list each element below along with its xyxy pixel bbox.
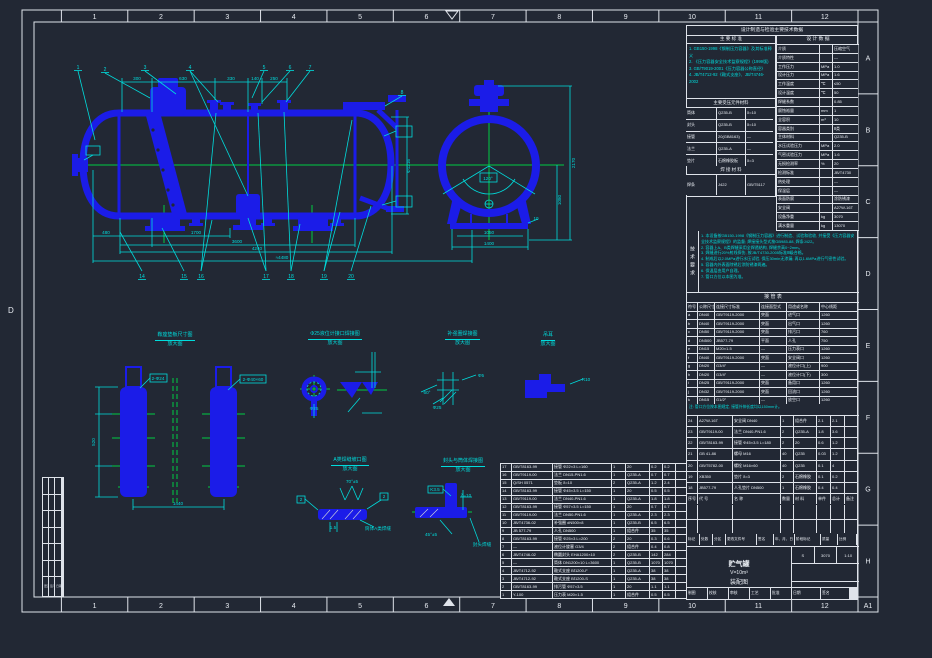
tech-req-item: 7. 管口方位以本图为准。 (701, 274, 857, 280)
table-cell: 1.8 (663, 496, 675, 503)
table-cell: DN25 (698, 380, 714, 388)
table-cell: 0.5 (650, 488, 662, 495)
dimension-label: ≈4480 (276, 255, 289, 260)
table-cell: 1 (612, 512, 625, 519)
table-cell: 设计压力 (777, 72, 819, 80)
table-cell: 签名 (757, 534, 773, 545)
table-cell: 接管 Φ45×3.5 L=150 (553, 488, 611, 495)
table-cell: 2 (781, 472, 793, 482)
table-cell: 15 (501, 480, 511, 487)
table-cell: GB/T9119-00 (512, 472, 552, 479)
dimension-label: 封头焊缝 (473, 541, 492, 548)
table-cell (49, 495, 54, 511)
table-cell: — (746, 143, 773, 154)
table-cell (831, 505, 844, 519)
grid-col-label: 10 (688, 603, 696, 610)
table-cell: 1.2 (831, 449, 844, 459)
table-cell: 1260 (820, 397, 857, 405)
table-cell: 0.5 (650, 591, 662, 598)
table-cell (781, 520, 793, 534)
table-cell: 900 (820, 363, 857, 371)
table-cell: f (687, 354, 697, 362)
table-cell (49, 478, 54, 494)
table-cell (845, 416, 857, 426)
table-cell: JB/T4746-02 (512, 551, 552, 558)
grid-col-label: 1 (93, 603, 97, 610)
table-cell: 气密试验压力 (777, 151, 819, 159)
table-cell: 设备净重 (777, 213, 819, 221)
table-cell: 鞍式支座 BⅠ1200-S (553, 575, 611, 582)
table-cell: 水压试验压力 (777, 142, 819, 150)
table-cell: 1260 (820, 380, 857, 388)
table-cell (845, 483, 857, 493)
detail-title-head-weld: 封头与筒体焊接图放大图 (418, 458, 508, 474)
table-cell: b (687, 320, 697, 328)
dimension-label: 2170 (571, 157, 576, 168)
table-cell: 20 (626, 488, 649, 495)
table-cell: kg (820, 213, 832, 221)
table-cell (781, 505, 793, 519)
weld-title: 焊 接 材 料 (687, 166, 775, 175)
table-cell: 38 (650, 567, 662, 574)
table-cell: GB/T8163-99 (512, 535, 552, 542)
table-cell: 6 (501, 551, 511, 558)
grid-col-label: 5 (358, 603, 362, 610)
table-cell: 760 (820, 329, 857, 337)
table-cell (845, 427, 857, 437)
table-cell (698, 505, 732, 519)
table-cell (687, 520, 697, 534)
grid-col-label: 11 (755, 603, 762, 610)
table-cell (820, 187, 832, 195)
grid-col-label: 4 (292, 14, 296, 21)
table-cell: DN20 (698, 363, 714, 371)
table-cell: 螺栓 M16×60 (733, 461, 780, 471)
dimension-label: 520 (91, 438, 96, 446)
table-cell (820, 54, 832, 62)
dimension-label: 1400 (484, 241, 495, 246)
table-cell: GB/T9119-00 (698, 427, 732, 437)
table-cell: Q235-B (717, 120, 745, 131)
grid-col-label: 1 (93, 14, 97, 21)
table-cell: — (746, 132, 773, 143)
table-cell: 1.8 (817, 427, 830, 437)
table-cell: 工作压力 (777, 63, 819, 71)
table-cell: 40 (781, 449, 793, 459)
table-cell: 0.2 (650, 464, 662, 471)
table-cell: 满水重量 (777, 222, 819, 230)
table-cell: — (833, 54, 858, 62)
table-cell (820, 45, 832, 53)
table-cell: Q235-A (717, 143, 745, 154)
dimension-label: δ=10 (461, 493, 472, 498)
table-cell (831, 520, 844, 534)
table-cell: DN40 (698, 354, 714, 362)
table-cell: 备用口 (787, 380, 819, 388)
grid-col-label: 3 (225, 603, 229, 610)
table-cell: 批准 (771, 588, 791, 599)
table-cell: 1070 (650, 559, 662, 566)
table-cell (733, 505, 780, 519)
table-cell: 介质特性 (777, 54, 819, 62)
table-cell (817, 505, 830, 519)
table-cell: 40 (781, 461, 793, 471)
table-cell: 2 (781, 427, 793, 437)
table-cell: 容器类别 (777, 125, 819, 133)
table-cell (820, 134, 832, 142)
table-cell: 表面防腐 (777, 196, 819, 204)
table-cell: 17 (501, 464, 511, 471)
table-cell: m³ (820, 116, 832, 124)
table-cell: 法兰 (686, 143, 716, 154)
table-cell: 突面 (760, 320, 786, 328)
table-cell: 接管 (686, 132, 716, 143)
table-cell (820, 98, 832, 106)
table-cell: 突面 (760, 354, 786, 362)
table-cell: 1 (612, 528, 625, 535)
table-cell: 1.2 (650, 480, 662, 487)
dimension-label: R10 (582, 377, 591, 382)
dimension-label: 1440 (173, 501, 184, 506)
table-cell (55, 544, 61, 560)
table-cell: GB/T8163-99 (512, 583, 552, 590)
drawing-type: 装配图 (730, 577, 748, 586)
dimension-label: 1050 (484, 230, 495, 235)
table-cell: 突面 (760, 312, 786, 320)
table-cell: A27W-16T (833, 204, 858, 212)
table-cell: DN50 (698, 329, 714, 337)
dimension-label: 120° (483, 176, 493, 181)
table-cell: 6.5 (650, 520, 662, 527)
table-cell: 排污口 (787, 329, 819, 337)
standards-item: 4. JB/T4712-92《鞍式支座》、JB/T4746-2002 (689, 72, 773, 85)
dimension-label: 140 (251, 76, 259, 81)
table-cell: DN500 (698, 337, 714, 345)
table-cell (845, 520, 857, 534)
table-cell: 35 (663, 528, 675, 535)
product-spec: V=10m³ (730, 570, 748, 576)
table-cell: 20 (626, 464, 649, 471)
grid-row-label: D (865, 271, 870, 278)
table-cell: Q235-B (626, 559, 649, 566)
saddle-plan-detail (120, 367, 237, 497)
grid-col-label: 3 (225, 14, 229, 21)
center-mark-bottom (443, 598, 455, 606)
saddle-right (298, 214, 328, 227)
table-cell: 0.2 (831, 472, 844, 482)
table-cell (55, 561, 61, 577)
table-cell: 补强圈 dN500×8 (553, 520, 611, 527)
table-cell: 材 料 (794, 494, 816, 504)
table-cell (820, 196, 832, 204)
table-cell (687, 505, 697, 519)
table-cell: 安全阀 DN40 (733, 416, 780, 426)
grid-col-label: 7 (491, 603, 495, 610)
table-cell: 1 (612, 591, 625, 598)
table-cell: 垫板 δ=10 (553, 480, 611, 487)
table-cell: — (833, 187, 858, 195)
table-cell: 0.5 (663, 591, 675, 598)
table-cell: 21 (687, 449, 697, 459)
table-cell: GB/T8163-99 (512, 464, 552, 471)
table-cell: 石棉橡胶 (794, 472, 816, 482)
table-cell: 1 (612, 464, 625, 471)
table-cell: 0.1 (817, 461, 830, 471)
table-cell: 筒体 (686, 108, 716, 119)
detail-title-saddle: 鞍座垫板尺寸图放大图 (135, 332, 215, 348)
grid-row-label: H (865, 559, 870, 566)
grid-row-label: E (866, 343, 871, 350)
table-cell: GB/T8163-99 (512, 488, 552, 495)
detail-title-reinforcement: 补强圈焊接图放大图 (425, 331, 500, 347)
table-cell: 全容积 (777, 116, 819, 124)
table-cell: 符号 (687, 303, 697, 311)
table-cell: 38 (650, 575, 662, 582)
left-nozzle (72, 154, 78, 176)
table-cell: M20×1.5 (715, 346, 759, 354)
standards-item: 1. GB150-1998《钢制压力容器》及其标准释义 (689, 46, 773, 59)
table-cell: 1070 (663, 559, 675, 566)
table-cell: 处数 (700, 534, 712, 545)
table-cell: δ=3 (746, 155, 773, 166)
table-cell: JB 577-79 (512, 528, 552, 535)
table-cell: 阶段标记 (795, 534, 820, 545)
grid-col-label: 5 (358, 14, 362, 21)
table-cell: 设计温度 (777, 89, 819, 97)
design-data-table: 介质压缩空气介质特性—工作压力MPa1.0设计压力MPa1.6工作温度℃≤50设… (777, 45, 858, 230)
table-cell: 0.8 (663, 543, 675, 550)
table-cell: 1 (833, 107, 858, 115)
table-cell: 0.7 (663, 472, 675, 479)
table-cell: GB/T9119-2000 (715, 388, 759, 396)
table-cell: Q235-B (626, 520, 649, 527)
table-cell: 1 (501, 591, 511, 598)
table-cell: 0.7 (650, 472, 662, 479)
table-cell: Q235-B (717, 108, 745, 119)
detail-title-lug: 吊耳放大图 (518, 332, 578, 348)
table-cell: Q235 (794, 461, 816, 471)
grid-row-label: B (866, 127, 871, 134)
sheet-format-label: A1 (864, 603, 873, 610)
bom-table-main: 17GB/T8163-99接管 Φ22×3 L=1601200.20.216GB… (500, 463, 691, 599)
table-cell: 1260 (820, 388, 857, 396)
table-cell: GB/T5117 (746, 175, 773, 195)
table-cell: 1260 (820, 354, 857, 362)
table-cell (794, 520, 816, 534)
table-cell: 12 (501, 504, 511, 511)
table-cell (820, 169, 832, 177)
design-data-title: 设 计 数 据 (777, 35, 859, 45)
table-cell: 分区 (713, 534, 725, 545)
table-cell: 热处理 (777, 178, 819, 186)
table-cell: Q235-B (626, 551, 649, 558)
table-cell: ≤50 (833, 80, 858, 88)
table-cell: — (833, 178, 858, 186)
table-cell: JB577-79 (698, 483, 732, 493)
grid-col-label: 6 (425, 14, 429, 21)
table-cell: 0.5 (663, 488, 675, 495)
table-cell: 序号 (687, 494, 697, 504)
table-cell: 平面 (760, 337, 786, 345)
table-cell: 1260 (820, 320, 857, 328)
dimension-label: 3600 (232, 239, 243, 244)
table-cell: GB/T9119-00 (512, 512, 552, 519)
table-cell: 质量 (821, 534, 837, 545)
cad-sheet: 112233445566778899101011111212ABCDEFGHA1… (0, 0, 932, 658)
table-cell: 法兰 DN50-PN1.6 (553, 512, 611, 519)
table-cell (820, 125, 832, 133)
table-cell: 4 (831, 461, 844, 471)
table-cell (817, 520, 830, 534)
table-cell: JB/T4712-92 (512, 567, 552, 574)
table-cell: kg (820, 222, 832, 230)
table-cell: 鞍式支座 BⅠ1200-F (553, 567, 611, 574)
table-cell: 13 (501, 496, 511, 503)
table-cell: 0.1 (817, 472, 830, 482)
table-cell: 连接尺寸标准 (715, 303, 759, 311)
mass-value: 3070 (815, 547, 838, 563)
table-cell: 压缩空气 (833, 45, 858, 53)
table-cell: 中心线距 (820, 303, 857, 311)
table-cell: 数量 (781, 494, 793, 504)
table-cell: 液位计口(上) (787, 363, 819, 371)
table-cell: 18 (687, 483, 697, 493)
table-cell: 20 (626, 583, 649, 590)
table-cell: — (760, 346, 786, 354)
table-cell: 38 (663, 567, 675, 574)
table-cell: 1 (612, 488, 625, 495)
table-cell (845, 438, 857, 448)
table-cell: DN32 (698, 388, 714, 396)
table-cell (698, 520, 732, 534)
table-cell: 审核 (729, 588, 749, 599)
dimension-label: 4240 (252, 246, 263, 251)
table-cell: GB/T9119-00 (512, 496, 552, 503)
detail-title-groove: A类焊缝坡口图放大图 (310, 457, 390, 473)
detail-title-levelgauge: Φ25液位计接口焊接图放大图 (290, 331, 380, 347)
table-cell: 法兰 DN40-PN1.6 (553, 496, 611, 503)
tech-req-item: 1. 本设备按GB150-1998《钢制压力容器》进行制造、试验和验收, 并接受… (701, 233, 857, 245)
table-cell: XB350 (698, 472, 732, 482)
table-cell: 1.6 (833, 72, 858, 80)
dimension-label: 2 (383, 494, 386, 499)
dimension-label: 2-Φ24 (152, 376, 165, 381)
table-cell: 组合件 (626, 591, 649, 598)
table-cell: GB/T8163-99 (698, 438, 732, 448)
dimension-label: Φ25 (310, 406, 319, 411)
table-cell: 16 (501, 472, 511, 479)
dimension-label: Φ5 (478, 373, 485, 378)
table-cell: JB/T4712-92 (512, 575, 552, 582)
table-cell: GB/T9119-2000 (715, 354, 759, 362)
table-cell: 4 (501, 567, 511, 574)
table-cell: 日期 (55, 577, 61, 596)
table-cell: 1 (612, 472, 625, 479)
table-cell: 签名 (821, 588, 849, 599)
table-cell: k (687, 397, 697, 405)
table-cell: Q/SH 0571 (512, 480, 552, 487)
dimension-label: 60° (424, 390, 431, 395)
table-cell (845, 472, 857, 482)
table-cell: 安全阀口 (787, 354, 819, 362)
table-cell: 突面 (760, 388, 786, 396)
table-cell: 0.2 (663, 464, 675, 471)
table-cell: 2.3 (663, 512, 675, 519)
table-cell: 检测标准 (777, 169, 819, 177)
table-cell (49, 544, 54, 560)
stage-value: S (792, 547, 815, 563)
table-cell: 1 (781, 416, 793, 426)
centerlines (78, 83, 564, 512)
materials-title: 主要受压元件材料 (687, 98, 775, 108)
table-cell: 1 (781, 483, 793, 493)
table-cell: 标记 (687, 534, 699, 545)
table-cell: 校核 (708, 588, 728, 599)
center-mark-top (446, 11, 458, 19)
table-cell: 0.4 (831, 483, 844, 493)
table-cell: 法兰 DN40-PN1.6 (733, 427, 780, 437)
table-cell: 进气口 (787, 312, 819, 320)
top-bracket (343, 102, 385, 110)
table-cell: MPa (820, 151, 832, 159)
table-cell: 1 (612, 520, 625, 527)
table-cell: 回流口 (787, 388, 819, 396)
dimension-label: 1.5 (330, 525, 337, 530)
table-cell: 10 (501, 520, 511, 527)
table-cell: 8 (501, 535, 511, 542)
table-cell (55, 478, 61, 494)
weld-table: 焊条J422GB/T5117 (686, 175, 773, 195)
table-cell: 1.2 (831, 438, 844, 448)
table-cell: 保温层 (777, 187, 819, 195)
grid-col-label: 7 (491, 14, 495, 21)
table-cell (820, 204, 832, 212)
table-cell: JB/T4736-02 (512, 520, 552, 527)
table-cell (43, 561, 48, 577)
table-cell: 300 (820, 371, 857, 379)
table-cell: 20 (626, 504, 649, 511)
table-cell: 制图 (687, 588, 707, 599)
table-cell: 20 (794, 438, 816, 448)
table-cell: 19 (687, 472, 697, 482)
table-cell: 2.4 (663, 480, 675, 487)
dimension-label: 1080 (557, 194, 562, 205)
table-cell: J422 (717, 175, 745, 195)
table-cell: 20 (833, 160, 858, 168)
nozzle-note: 注: 管口方位按本图规定, 接管外伸长度均以150mm计。 (687, 404, 859, 412)
table-cell: 1 (612, 504, 625, 511)
dimension-label: K3.5 (430, 487, 440, 492)
signature-row: 标记处数分区更改文件号签名年、月、日阶段标记质量比例 (686, 534, 858, 545)
right-panel: 设计制造与检验主要技术数据 主 要 标 准 1. GB150-1998《钢制压力… (686, 25, 858, 597)
table-cell: 筒体 DN1200×10 L=3600 (553, 559, 611, 566)
grid-col-label: 4 (292, 603, 296, 610)
table-cell: DN15 (698, 397, 714, 405)
dimension-label: 630 (179, 76, 187, 81)
table-cell: 0.6 (663, 535, 675, 542)
product-name: 贮气罐 (729, 559, 750, 569)
table-cell: 安全阀 (777, 204, 819, 212)
table-cell: 20 (626, 535, 649, 542)
table-cell: 人孔垫片 DN500 (733, 483, 780, 493)
table-cell: — (760, 363, 786, 371)
table-cell: 50 (833, 89, 858, 97)
table-cell: Q235-A (794, 427, 816, 437)
table-cell: 2 (781, 438, 793, 448)
dimension-label: 筒体A类焊缝 (365, 525, 391, 532)
table-cell: 3070 (833, 213, 858, 221)
table-cell (733, 520, 780, 534)
